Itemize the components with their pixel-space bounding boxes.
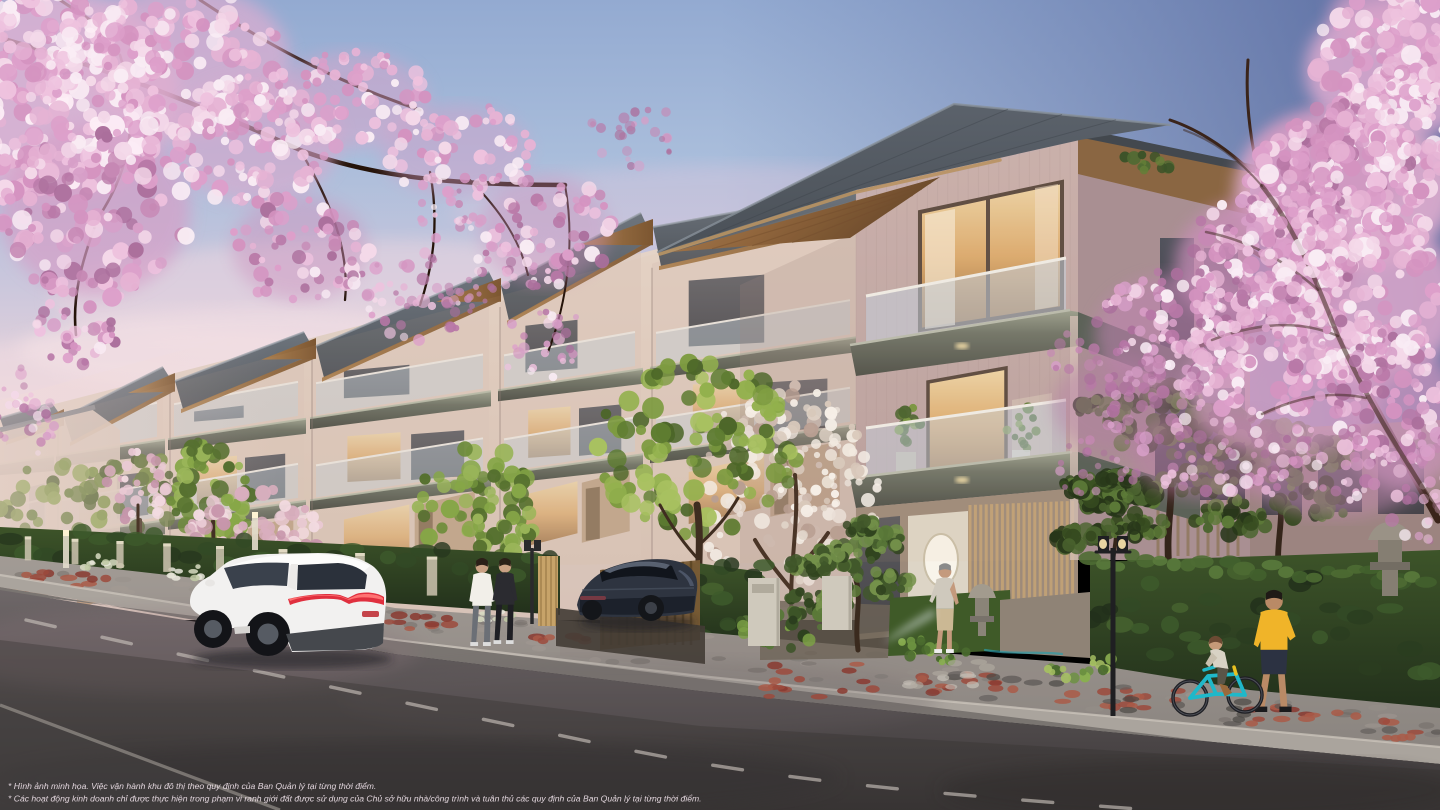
- svg-text:* Các hoạt động kinh doanh chỉ: * Các hoạt động kinh doanh chỉ được thực…: [8, 794, 702, 804]
- svg-text:* Hình ảnh minh họa. Việc vận: * Hình ảnh minh họa. Việc vận hành khu đ…: [8, 781, 376, 791]
